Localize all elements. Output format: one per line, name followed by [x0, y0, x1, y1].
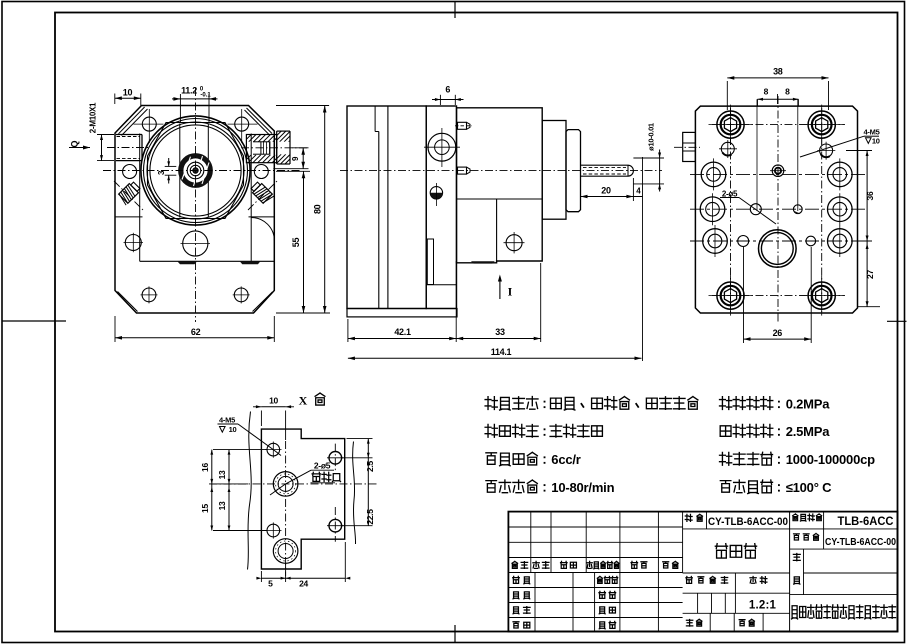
svg-text:CY-TLB-6ACC-00: CY-TLB-6ACC-00	[825, 536, 896, 548]
svg-text:I: I	[508, 285, 513, 299]
svg-text:10: 10	[123, 88, 133, 98]
svg-text:6cc/r: 6cc/r	[551, 452, 581, 467]
svg-text:Q: Q	[70, 140, 80, 147]
svg-text:1000-100000cp: 1000-100000cp	[786, 452, 875, 467]
svg-text:10: 10	[229, 425, 237, 434]
svg-text:4-M5: 4-M5	[219, 416, 235, 425]
svg-text:2-ø5: 2-ø5	[314, 461, 331, 471]
svg-text:2-M10X1: 2-M10X1	[89, 102, 98, 133]
svg-text:55: 55	[291, 238, 301, 248]
svg-text:9: 9	[291, 156, 300, 161]
svg-text:2-ø5: 2-ø5	[722, 189, 738, 198]
svg-text:33: 33	[495, 327, 505, 337]
svg-text:≤100° C: ≤100° C	[786, 480, 832, 495]
svg-text:27: 27	[865, 270, 875, 279]
svg-text:80: 80	[313, 204, 323, 214]
svg-text:-0.1: -0.1	[200, 93, 211, 99]
svg-text:TLB-6ACC: TLB-6ACC	[838, 514, 894, 528]
svg-text:1.2:1: 1.2:1	[749, 600, 777, 612]
svg-text:26: 26	[773, 328, 783, 338]
svg-text:16: 16	[200, 463, 210, 472]
svg-text:8: 8	[785, 87, 790, 97]
svg-text:15: 15	[200, 504, 210, 513]
svg-text:6: 6	[445, 85, 450, 95]
svg-text:4-M5: 4-M5	[864, 128, 880, 137]
svg-text:4: 4	[636, 187, 641, 196]
svg-text:42.1: 42.1	[394, 327, 411, 337]
svg-text:62: 62	[191, 327, 201, 337]
svg-text:114.1: 114.1	[491, 347, 512, 357]
svg-text:ø10-0.01: ø10-0.01	[647, 123, 656, 151]
svg-text:CY-TLB-6ACC-00: CY-TLB-6ACC-00	[708, 516, 788, 528]
svg-text:3: 3	[157, 170, 166, 175]
svg-text:10: 10	[872, 136, 880, 145]
svg-text:5: 5	[268, 579, 273, 589]
svg-text:20: 20	[601, 186, 611, 196]
svg-text:0.2MPa: 0.2MPa	[786, 396, 831, 411]
svg-text:2.5MPa: 2.5MPa	[786, 424, 831, 439]
svg-text:13: 13	[217, 470, 227, 479]
svg-text:10-80r/min: 10-80r/min	[551, 480, 614, 495]
svg-text:11.2: 11.2	[181, 86, 197, 96]
svg-text:8: 8	[764, 87, 769, 97]
svg-text:22.5: 22.5	[365, 509, 375, 525]
svg-text:13: 13	[217, 501, 227, 510]
svg-text:38: 38	[773, 67, 783, 77]
svg-text:36: 36	[865, 191, 875, 200]
svg-text:24: 24	[299, 579, 308, 589]
svg-text:2.5: 2.5	[365, 460, 375, 471]
svg-text:X: X	[299, 394, 308, 408]
svg-text:10: 10	[269, 396, 278, 406]
